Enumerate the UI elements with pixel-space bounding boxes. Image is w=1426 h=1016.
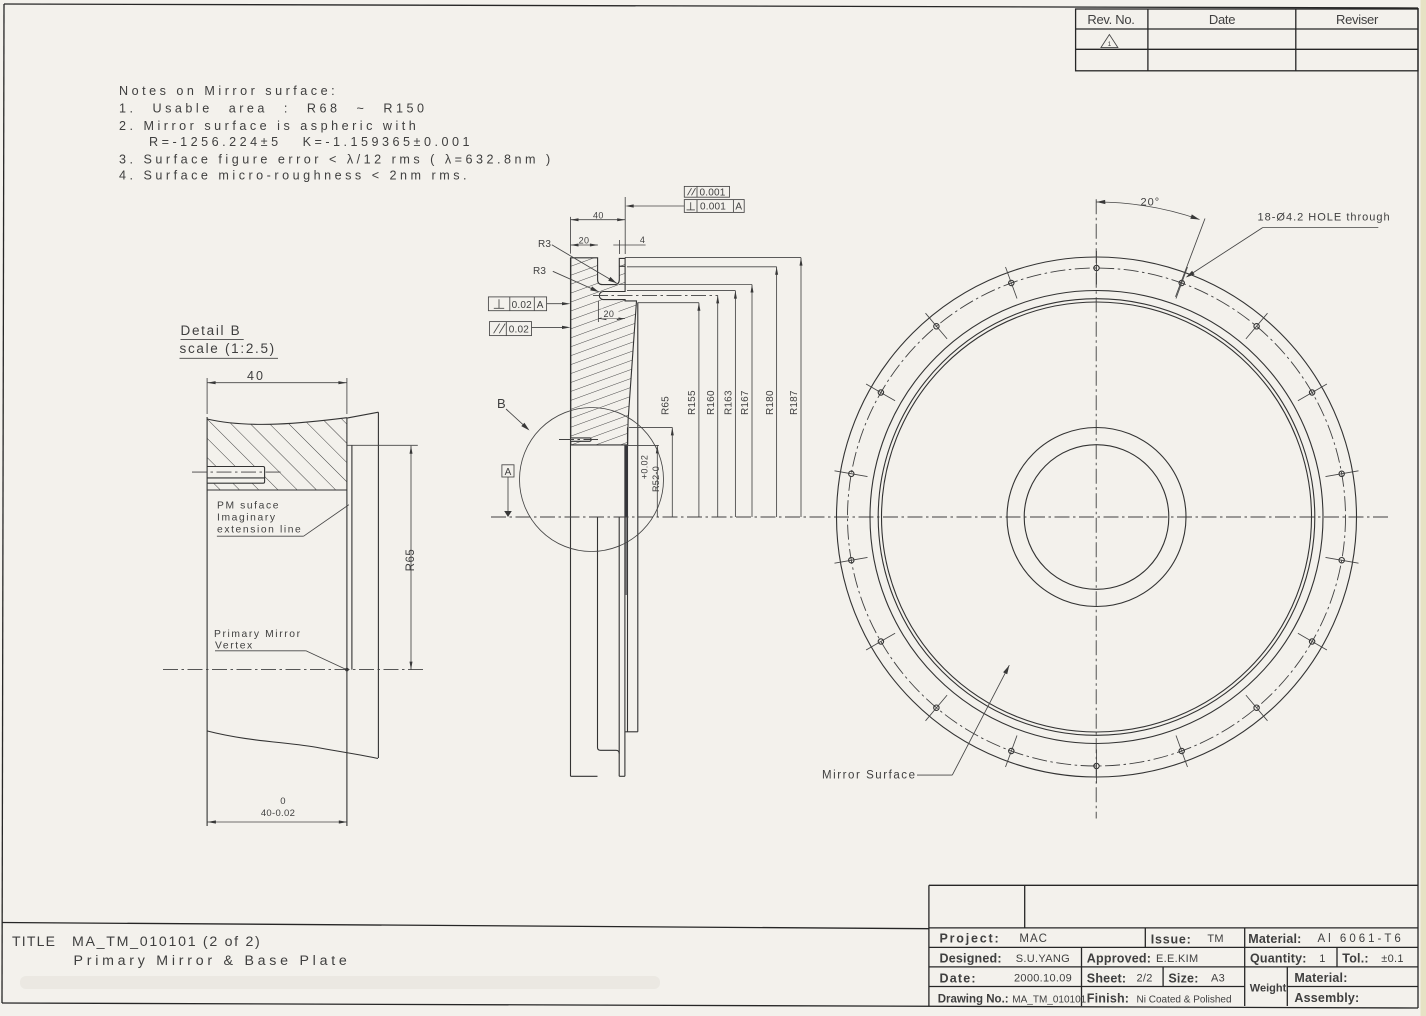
svg-text:40: 40 <box>247 369 265 383</box>
svg-text:Al 6061-T6: Al 6061-T6 <box>1318 933 1404 945</box>
svg-text:Sheet:: Sheet: <box>1087 972 1126 986</box>
svg-text:1. Usable area : R68 ~ R150: 1. Usable area : R68 ~ R150 <box>119 102 427 116</box>
svg-text:scale (1:2.5): scale (1:2.5) <box>180 341 276 356</box>
svg-text:Material:: Material: <box>1248 932 1301 946</box>
svg-text:A: A <box>735 202 742 213</box>
svg-text:Weight: Weight <box>1250 983 1287 995</box>
svg-text:20: 20 <box>604 309 615 319</box>
svg-text:A: A <box>505 467 512 478</box>
svg-text:40-0.02: 40-0.02 <box>261 808 295 819</box>
svg-text:Approved:: Approved: <box>1087 952 1151 966</box>
svg-text:R3: R3 <box>533 266 546 277</box>
svg-text:Tol.:: Tol.: <box>1342 952 1368 966</box>
svg-text:R3: R3 <box>538 239 551 250</box>
svg-text:+0.02: +0.02 <box>640 455 650 479</box>
svg-text:Detail B: Detail B <box>181 323 242 338</box>
svg-text:2/2: 2/2 <box>1137 973 1153 985</box>
svg-text:Date: Date <box>1209 12 1235 27</box>
svg-text:Primary Mirror & Base Plate: Primary Mirror & Base Plate <box>74 953 351 969</box>
svg-text:MA_TM_010101 (2 of 2): MA_TM_010101 (2 of 2) <box>72 934 261 950</box>
svg-text:1: 1 <box>1108 41 1112 48</box>
svg-text:R187: R187 <box>789 390 800 415</box>
svg-text:20: 20 <box>579 236 590 246</box>
svg-text:E.E.KIM: E.E.KIM <box>1156 953 1198 965</box>
svg-text:Mirror Surface: Mirror Surface <box>822 770 917 782</box>
svg-text:TM: TM <box>1207 933 1223 945</box>
svg-text:R65: R65 <box>661 396 672 415</box>
svg-text:R65: R65 <box>405 549 417 572</box>
svg-text:extension line: extension line <box>217 524 302 535</box>
svg-text:Rev. No.: Rev. No. <box>1087 12 1134 27</box>
svg-text:2000.10.09: 2000.10.09 <box>1014 973 1072 985</box>
svg-text:Designed:: Designed: <box>940 952 1002 966</box>
svg-text:±0.1: ±0.1 <box>1381 953 1404 965</box>
svg-text:S.U.YANG: S.U.YANG <box>1016 953 1070 965</box>
svg-text:R167: R167 <box>740 390 751 415</box>
svg-text:4: 4 <box>640 235 645 245</box>
svg-text:0: 0 <box>280 796 286 807</box>
svg-text:R155: R155 <box>687 390 698 415</box>
svg-text:Primary Mirror: Primary Mirror <box>214 629 302 640</box>
svg-text:Assembly:: Assembly: <box>1294 991 1359 1005</box>
svg-text:A: A <box>537 300 544 311</box>
svg-text:0.02: 0.02 <box>512 300 533 311</box>
svg-text:Finish:: Finish: <box>1087 992 1129 1006</box>
svg-text:Notes on Mirror surface:: Notes on Mirror surface: <box>119 84 338 98</box>
svg-text:0.001: 0.001 <box>700 188 726 199</box>
svg-text:40: 40 <box>593 210 604 220</box>
svg-text:Issue:: Issue: <box>1151 933 1192 947</box>
svg-text:A3: A3 <box>1211 973 1225 985</box>
svg-text:0.02: 0.02 <box>509 324 530 335</box>
svg-text:PM suface: PM suface <box>217 500 280 511</box>
svg-text:R52-0: R52-0 <box>651 466 661 492</box>
svg-text:3. Surface figure error < λ/12: 3. Surface figure error < λ/12 rms ( λ=6… <box>119 153 554 167</box>
svg-text:Drawing No.:: Drawing No.: <box>938 994 1009 1006</box>
svg-text:R=-1256.224±5 K=-1.159365±0.: R=-1256.224±5 K=-1.159365±0.001 <box>149 135 473 149</box>
svg-text:Imaginary: Imaginary <box>217 512 277 523</box>
svg-text:1: 1 <box>1319 953 1325 965</box>
svg-text:R160: R160 <box>706 390 717 415</box>
svg-text:2. Mirror surface is aspheric: 2. Mirror surface is aspheric with <box>119 119 419 133</box>
svg-text:18-Ø4.2 HOLE through: 18-Ø4.2 HOLE through <box>1258 212 1391 224</box>
svg-text:0.001: 0.001 <box>700 202 726 213</box>
svg-text:Size:: Size: <box>1168 972 1198 986</box>
svg-text:Ni Coated & Polished: Ni Coated & Polished <box>1137 995 1232 1006</box>
svg-text:TITLE: TITLE <box>12 933 56 949</box>
svg-text:4. Surface micro-roughness < 2: 4. Surface micro-roughness < 2nm rms. <box>119 169 470 183</box>
svg-text:Project:: Project: <box>940 932 1001 946</box>
svg-text:Vertex: Vertex <box>215 641 254 652</box>
svg-text:Material:: Material: <box>1294 971 1347 985</box>
svg-text:Reviser: Reviser <box>1336 12 1379 27</box>
svg-text:Quantity:: Quantity: <box>1250 952 1307 966</box>
svg-text:20°: 20° <box>1141 197 1161 209</box>
svg-text:R180: R180 <box>765 390 776 415</box>
svg-text:R163: R163 <box>724 390 735 415</box>
svg-text:MAC: MAC <box>1019 933 1048 945</box>
svg-text:MA_TM_010101: MA_TM_010101 <box>1012 995 1086 1006</box>
svg-text:Date:: Date: <box>940 972 977 986</box>
